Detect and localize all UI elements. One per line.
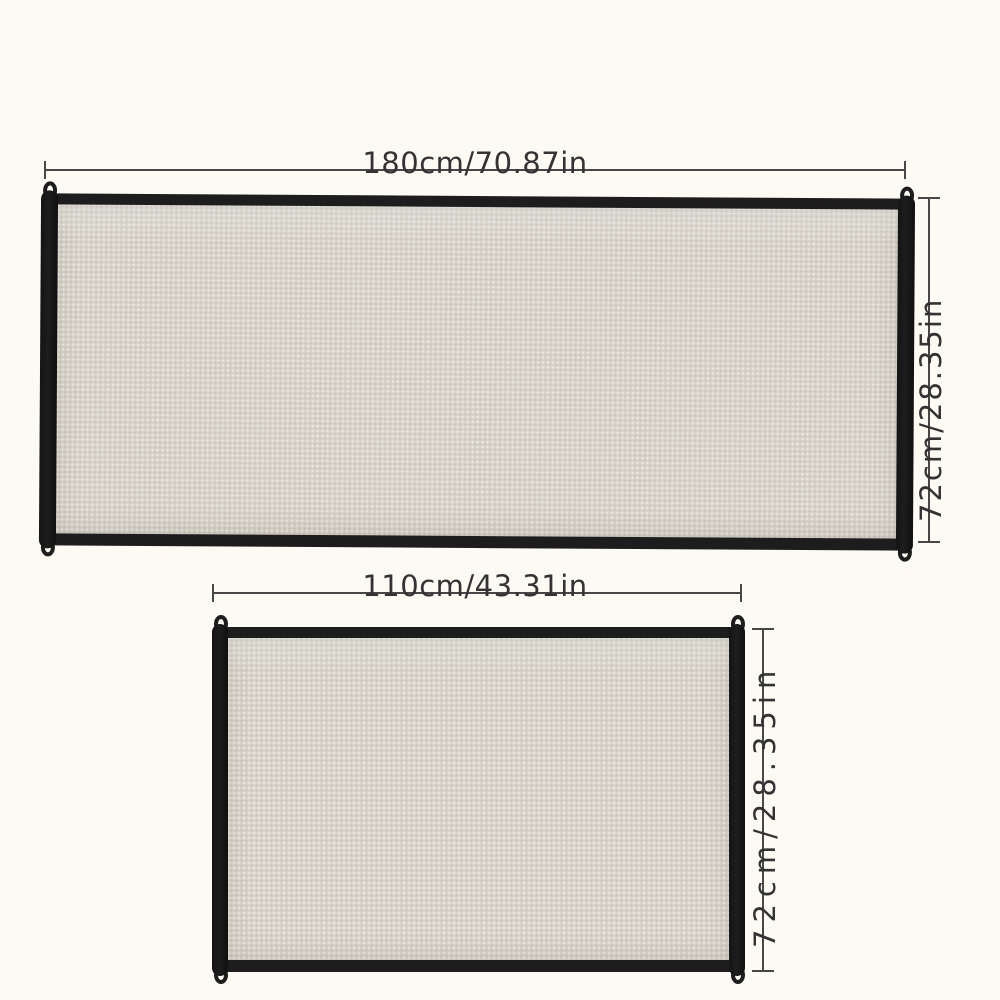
large-gate-height-dimension-label: 72cm/28.35in (913, 283, 949, 537)
product-size-diagram: 180cm/70.87in 72cm/28.35in 110cm/43.31in… (0, 0, 1000, 1000)
small-gate-mesh-panel (224, 627, 733, 972)
small-gate-height-dimension-label: 72cm/28.35in (747, 641, 783, 971)
small-gate-width-dimension-label: 110cm/43.31in (275, 569, 675, 603)
small-gate-rod-left (212, 624, 228, 976)
small-gate-rod-right (729, 624, 745, 976)
large-gate-width-dimension-label: 180cm/70.87in (275, 146, 675, 180)
